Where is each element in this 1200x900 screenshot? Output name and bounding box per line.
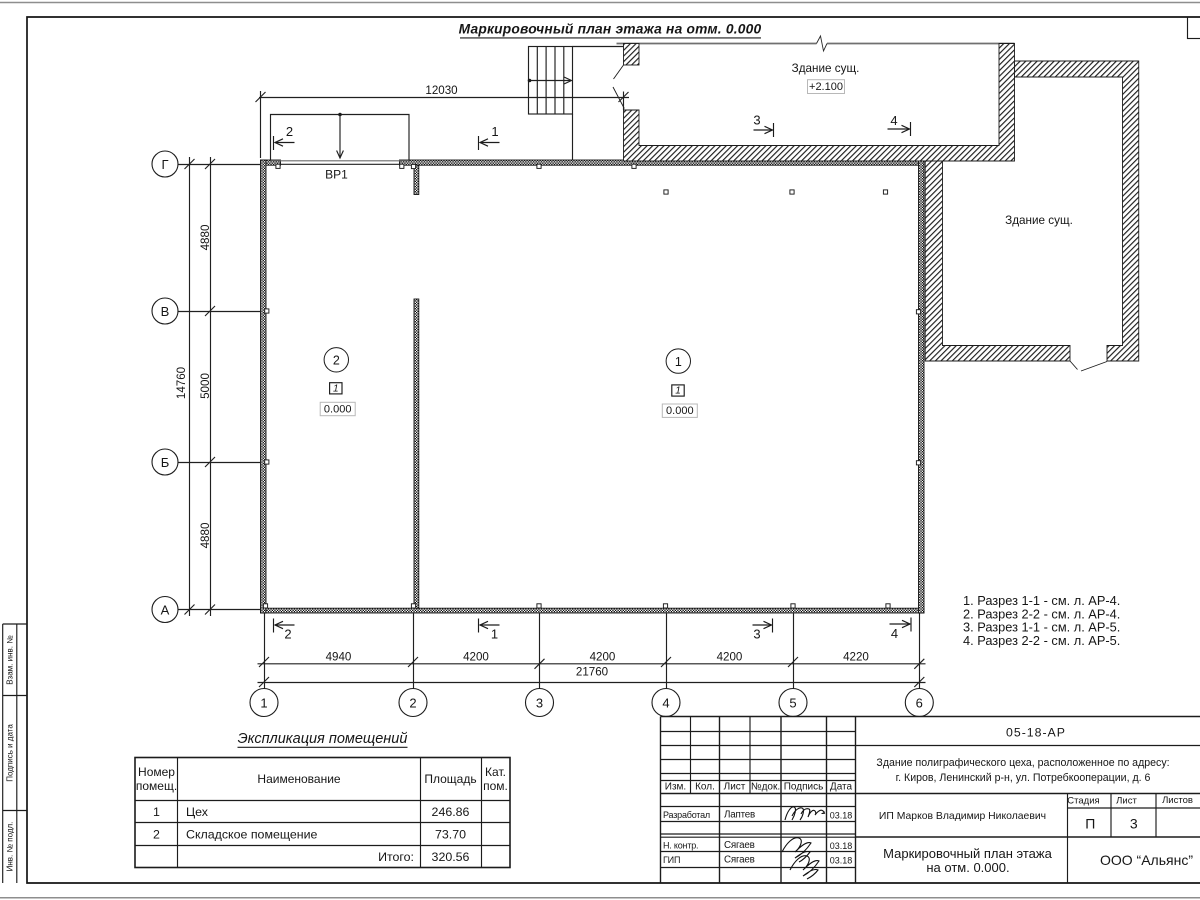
svg-text:246.86: 246.86 (432, 805, 470, 819)
svg-text:А: А (161, 603, 170, 618)
svg-text:Инв. № подл.: Инв. № подл. (6, 822, 15, 872)
svg-text:2: 2 (286, 124, 293, 139)
svg-text:Б: Б (161, 455, 170, 470)
svg-text:Сягаев: Сягаев (724, 855, 755, 866)
svg-text:05-18-АР: 05-18-АР (1006, 726, 1066, 740)
svg-text:№док.: №док. (751, 782, 780, 793)
svg-text:4. Разрез 2-2 - см. л. АР-5.: 4. Разрез 2-2 - см. л. АР-5. (963, 633, 1120, 648)
svg-text:4200: 4200 (463, 651, 489, 664)
svg-text:Разработал: Разработал (663, 810, 710, 820)
svg-text:1: 1 (491, 627, 498, 642)
svg-text:Цех: Цех (186, 805, 209, 819)
svg-text:4: 4 (891, 626, 898, 641)
svg-text:Дата: Дата (830, 782, 853, 793)
svg-text:Г: Г (161, 157, 168, 172)
svg-text:320.56: 320.56 (432, 850, 470, 864)
svg-text:ГИП: ГИП (663, 855, 680, 865)
svg-text:1: 1 (153, 805, 160, 819)
svg-text:Здание полиграфического цеха,: Здание полиграфического цеха, расположен… (876, 757, 1169, 769)
svg-text:Лаптев: Лаптев (724, 810, 755, 821)
svg-text:03.18: 03.18 (830, 811, 853, 821)
svg-text:Лист: Лист (1116, 796, 1137, 807)
svg-text:Маркировочный план этажа: Маркировочный план этажа (883, 846, 1052, 861)
svg-text:Изм.: Изм. (665, 782, 686, 793)
svg-text:3: 3 (536, 696, 543, 711)
svg-text:Кол.: Кол. (695, 782, 715, 793)
svg-text:12030: 12030 (425, 84, 457, 97)
svg-text:2: 2 (284, 627, 291, 642)
svg-text:4200: 4200 (590, 651, 616, 664)
svg-text:4880: 4880 (199, 523, 212, 549)
svg-text:Площадь: Площадь (424, 772, 476, 786)
svg-text:21760: 21760 (576, 666, 608, 679)
svg-text:П: П (1085, 816, 1095, 832)
svg-text:Сягаев: Сягаев (724, 840, 755, 851)
svg-text:03.18: 03.18 (830, 841, 853, 851)
svg-text:на отм. 0.000.: на отм. 0.000. (926, 860, 1009, 875)
svg-text:Подпись: Подпись (784, 782, 824, 793)
svg-text:73.70: 73.70 (435, 827, 466, 841)
svg-text:Номер: Номер (138, 765, 175, 779)
svg-text:0.000: 0.000 (324, 404, 352, 416)
svg-text:Наименование: Наименование (257, 772, 341, 786)
svg-text:03.18: 03.18 (830, 856, 853, 866)
svg-text:г. Киров, Ленинский р-н, ул.: г. Киров, Ленинский р-н, ул. Потребкоопе… (896, 772, 1151, 784)
svg-text:пом.: пом. (483, 779, 508, 793)
svg-text:ВР1: ВР1 (325, 168, 348, 182)
svg-text:14760: 14760 (175, 367, 188, 399)
svg-text:4940: 4940 (326, 651, 352, 664)
svg-text:Н. контр.: Н. контр. (663, 841, 698, 851)
svg-text:2: 2 (409, 696, 416, 711)
svg-text:Экспликация помещений: Экспликация помещений (238, 731, 408, 747)
svg-text:Складское помещение: Складское помещение (186, 827, 318, 841)
svg-text:4: 4 (662, 696, 669, 711)
svg-text:В: В (161, 304, 170, 319)
svg-text:Здание сущ.: Здание сущ. (792, 62, 860, 75)
svg-text:3: 3 (1130, 816, 1138, 832)
svg-text:Кат.: Кат. (485, 765, 506, 779)
svg-text:4880: 4880 (199, 225, 212, 251)
svg-text:помещ.: помещ. (136, 779, 177, 793)
svg-text:1: 1 (675, 386, 681, 397)
svg-text:4: 4 (890, 113, 897, 128)
svg-text:1: 1 (675, 355, 682, 369)
svg-text:5: 5 (789, 696, 796, 711)
svg-text:ИП Марков Владимир Николаевич: ИП Марков Владимир Николаевич (879, 811, 1046, 822)
svg-text:3: 3 (753, 113, 760, 128)
svg-text:+2.100: +2.100 (809, 81, 843, 93)
svg-text:2: 2 (333, 354, 340, 368)
svg-text:1: 1 (260, 696, 267, 711)
svg-text:5000: 5000 (199, 373, 212, 399)
svg-text:Подпись и дата: Подпись и дата (6, 724, 15, 782)
svg-text:0.000: 0.000 (666, 405, 694, 417)
svg-text:1: 1 (333, 383, 339, 394)
svg-text:ООО “Альянс”: ООО “Альянс” (1100, 852, 1193, 868)
svg-text:Итого:: Итого: (378, 850, 414, 864)
svg-text:Стадия: Стадия (1067, 796, 1099, 807)
svg-text:4220: 4220 (843, 651, 869, 664)
svg-text:2: 2 (153, 827, 160, 841)
svg-text:3: 3 (753, 627, 760, 642)
svg-text:Листов: Листов (1162, 795, 1193, 806)
svg-text:Маркировочный план этажа на от: Маркировочный план этажа на отм. 0.000 (459, 22, 762, 37)
svg-text:Взам. инв. №: Взам. инв. № (6, 635, 15, 685)
svg-text:6: 6 (916, 696, 923, 711)
svg-text:Лист: Лист (724, 782, 746, 793)
svg-text:Здание сущ.: Здание сущ. (1005, 214, 1073, 227)
svg-text:1: 1 (491, 124, 498, 139)
svg-text:4200: 4200 (717, 651, 743, 664)
